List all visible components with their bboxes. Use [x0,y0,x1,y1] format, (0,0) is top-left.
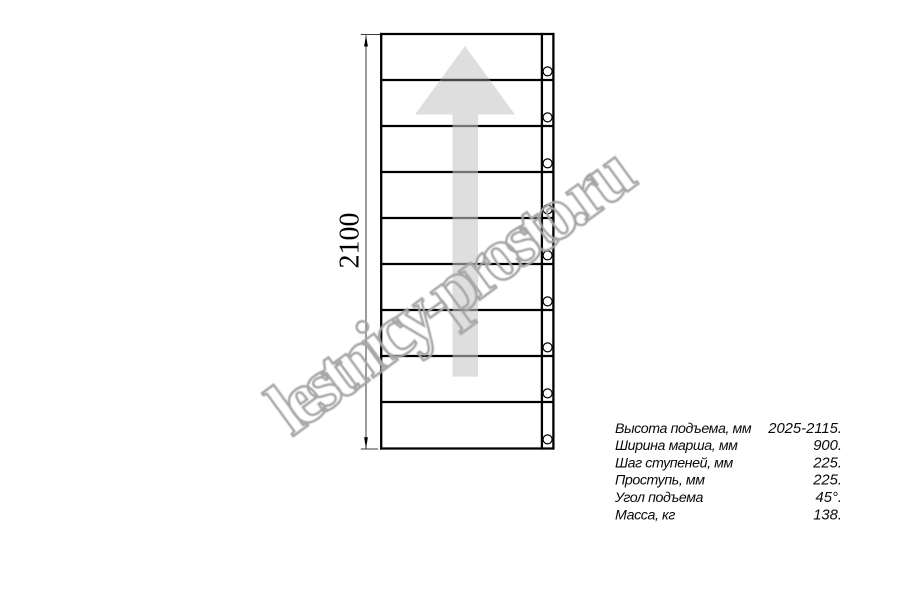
svg-text:900.: 900. [813,438,842,454]
svg-text:138.: 138. [813,507,842,523]
svg-text:Ширина марша, мм: Ширина марша, мм [615,438,738,454]
svg-text:Шаг ступеней, мм: Шаг ступеней, мм [615,455,733,471]
svg-text:Высота подъема, мм: Высота подъема, мм [615,421,752,437]
svg-text:225.: 225. [812,455,842,471]
svg-text:Масса, кг: Масса, кг [615,507,675,523]
svg-text:45°.: 45°. [816,490,843,506]
svg-text:Угол подъема: Угол подъема [614,490,704,506]
svg-text:2025-2115.: 2025-2115. [767,421,842,437]
svg-text:225.: 225. [812,473,842,489]
svg-text:2100: 2100 [335,213,366,269]
svg-text:Проступь, мм: Проступь, мм [615,473,705,489]
